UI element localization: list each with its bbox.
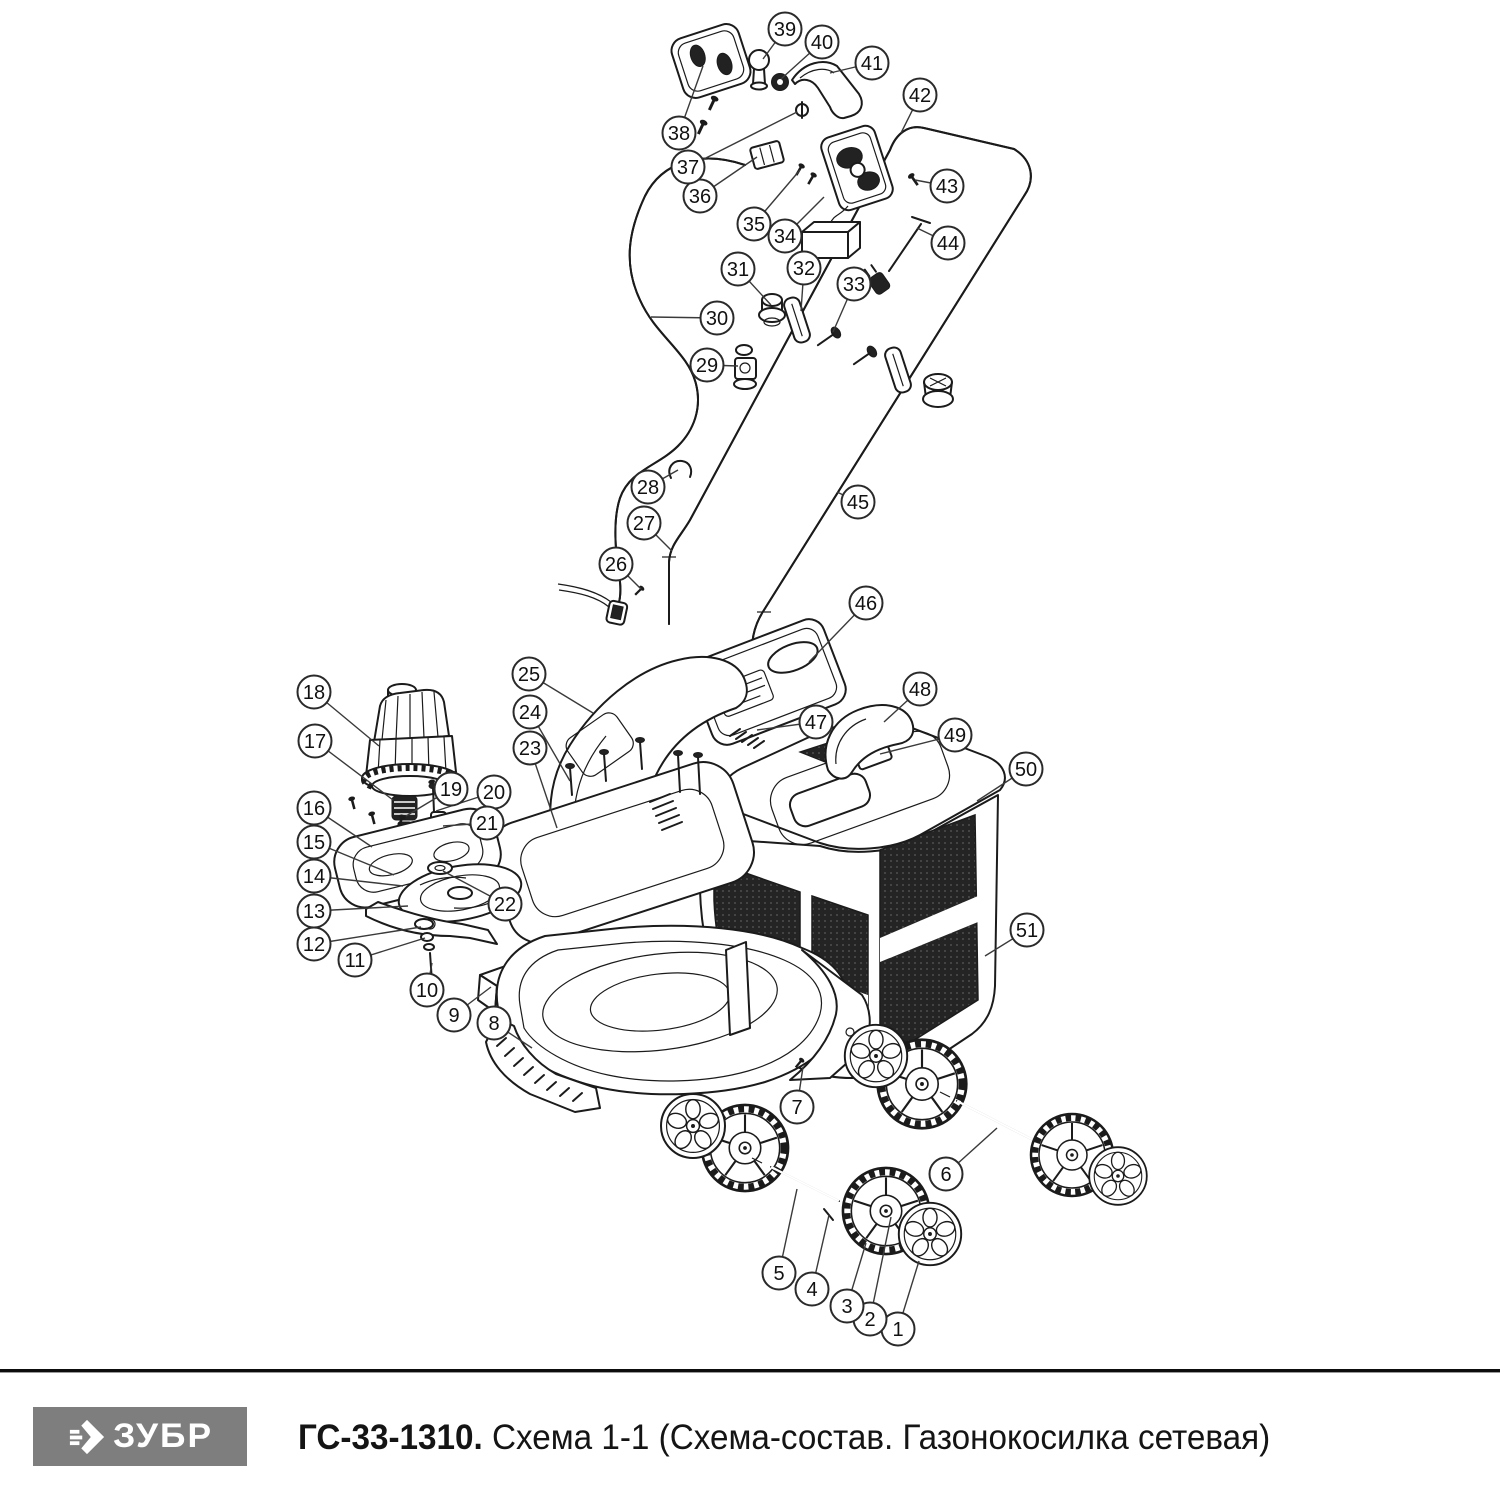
discharge-duct <box>726 942 750 1035</box>
deck-body <box>486 926 870 1112</box>
callout-number-11: 11 <box>345 950 366 972</box>
cable-hook <box>669 461 691 478</box>
callout-number-9: 9 <box>448 1005 459 1027</box>
callout-number-4: 4 <box>806 1279 817 1301</box>
callout-number-5: 5 <box>773 1263 784 1285</box>
callout-number-27: 27 <box>633 513 655 535</box>
callout-number-39: 39 <box>774 19 796 41</box>
cable-plug <box>606 600 628 625</box>
footer-divider <box>0 1369 1500 1373</box>
callout-number-12: 12 <box>303 934 325 956</box>
handle-knob <box>759 294 785 326</box>
cable-connector <box>750 140 785 169</box>
zubr-arrow-icon <box>68 1418 106 1456</box>
callout-number-10: 10 <box>416 980 438 1002</box>
callout-number-20: 20 <box>483 782 505 804</box>
handle-knob-2 <box>923 374 953 407</box>
callout-number-24: 24 <box>519 702 541 724</box>
callout-number-41: 41 <box>861 53 883 75</box>
scheme-subtitle: Схема 1-1 (Схема-состав. Газонокосилка с… <box>483 1418 1270 1457</box>
callout-number-40: 40 <box>811 32 833 54</box>
callout-number-17: 17 <box>304 731 326 753</box>
grommet <box>772 74 789 91</box>
callout-number-8: 8 <box>488 1013 499 1035</box>
handle-screw <box>907 172 921 187</box>
wrench <box>889 217 930 271</box>
callout-number-2: 2 <box>864 1309 875 1331</box>
callout-number-48: 48 <box>909 679 931 701</box>
switch-box <box>668 21 754 102</box>
callout-number-50: 50 <box>1015 759 1037 781</box>
carriage-bolt-2 <box>850 344 878 369</box>
carriage-bolt <box>814 325 842 350</box>
blade-washers <box>415 919 434 950</box>
callout-number-46: 46 <box>855 593 877 615</box>
callout-number-3: 3 <box>841 1296 852 1318</box>
switch-box-screw <box>706 95 720 112</box>
callout-number-1: 1 <box>892 1319 903 1341</box>
brand-name: ЗУБР <box>113 1417 213 1456</box>
callout-number-21: 21 <box>476 813 498 835</box>
cable-clip <box>734 345 756 389</box>
loose-hubcap-center <box>899 1203 961 1265</box>
callout-number-43: 43 <box>936 176 958 198</box>
callout-number-45: 45 <box>847 492 869 514</box>
model-number: ГС-33-1310. <box>298 1418 483 1457</box>
callout-number-33: 33 <box>843 274 865 296</box>
callout-number-38: 38 <box>668 123 690 145</box>
callout-number-6: 6 <box>940 1164 951 1186</box>
front-hubcap <box>661 1094 725 1158</box>
callout-number-31: 31 <box>727 259 749 281</box>
callout-number-44: 44 <box>937 233 959 255</box>
callout-number-34: 34 <box>774 226 796 248</box>
switch-box-screw-2 <box>695 119 709 136</box>
callout-number-32: 32 <box>793 258 815 280</box>
callout-number-42: 42 <box>909 85 931 107</box>
callout-number-25: 25 <box>518 664 540 686</box>
callout-number-51: 51 <box>1016 920 1038 942</box>
diagram-canvas: 1234567891011121314151617181920212223242… <box>0 0 1500 1500</box>
callout-number-16: 16 <box>303 798 325 820</box>
callout-number-22: 22 <box>494 894 516 916</box>
callout-number-18: 18 <box>303 682 325 704</box>
callout-number-28: 28 <box>637 477 659 499</box>
bearing <box>428 862 452 874</box>
power-cable <box>558 159 745 626</box>
brand-logo: ЗУБР <box>33 1407 247 1466</box>
motor-screw-2 <box>368 811 378 825</box>
callout-number-14: 14 <box>303 866 325 888</box>
callout-number-13: 13 <box>303 901 325 923</box>
lever-pivot <box>796 102 808 118</box>
switch-plate <box>819 123 896 213</box>
callout-number-26: 26 <box>605 554 627 576</box>
motor-screw <box>348 796 358 810</box>
callout-number-37: 37 <box>677 157 699 179</box>
rear-hubcap <box>845 1025 907 1087</box>
callout-number-19: 19 <box>440 779 462 801</box>
scheme-title: ГС-33-1310. Схема 1-1 (Схема-состав. Газ… <box>298 1418 1270 1458</box>
callout-number-29: 29 <box>696 355 718 377</box>
callout-number-30: 30 <box>706 308 728 330</box>
callout-number-23: 23 <box>519 738 541 760</box>
callout-number-15: 15 <box>303 832 325 854</box>
loose-hubcap-right <box>1089 1147 1147 1205</box>
callout-number-35: 35 <box>743 214 765 236</box>
callout-number-49: 49 <box>944 725 966 747</box>
page: 1234567891011121314151617181920212223242… <box>0 0 1500 1500</box>
callout-number-47: 47 <box>805 712 827 734</box>
callout-number-36: 36 <box>689 186 711 208</box>
switch-screw-2 <box>805 171 817 186</box>
callout-number-7: 7 <box>791 1097 802 1119</box>
handle-bracket-2 <box>883 346 912 395</box>
